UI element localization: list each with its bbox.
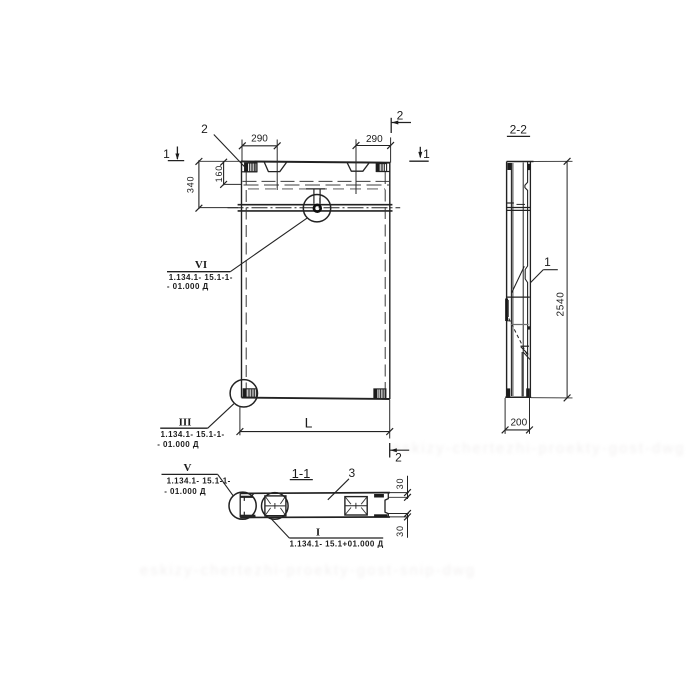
svg-text:2540: 2540 [555, 291, 566, 316]
svg-text:200: 200 [510, 418, 527, 429]
svg-text:30: 30 [395, 478, 405, 490]
svg-text:- 01.000 Д: - 01.000 Д [167, 282, 209, 291]
svg-text:2: 2 [397, 109, 404, 123]
svg-text:V: V [184, 462, 192, 474]
svg-text:160: 160 [214, 165, 224, 182]
svg-text:- 01.000 Д: - 01.000 Д [164, 487, 206, 496]
svg-text:VI: VI [195, 259, 207, 271]
svg-text:30: 30 [395, 525, 405, 537]
svg-text:3: 3 [348, 466, 355, 480]
svg-text:1.134.1- 15.1+01.000 Д: 1.134.1- 15.1+01.000 Д [290, 540, 384, 549]
svg-text:1.134.1- 15.1-1-: 1.134.1- 15.1-1- [161, 430, 225, 439]
svg-text:- 01.000 Д: - 01.000 Д [157, 440, 199, 449]
svg-text:2-2: 2-2 [510, 122, 528, 136]
svg-text:290: 290 [366, 134, 383, 145]
svg-text:1: 1 [423, 147, 430, 161]
svg-text:1.134.1- 15.1-1-: 1.134.1- 15.1-1- [167, 477, 231, 486]
svg-text:2: 2 [395, 451, 402, 465]
svg-text:1: 1 [544, 255, 551, 269]
svg-text:2: 2 [201, 122, 208, 136]
svg-text:I: I [316, 527, 320, 539]
svg-text:III: III [179, 417, 192, 429]
svg-text:1: 1 [163, 147, 170, 161]
svg-text:340: 340 [185, 176, 195, 193]
svg-text:290: 290 [251, 134, 268, 145]
svg-text:L: L [305, 415, 313, 431]
svg-text:1-1: 1-1 [292, 466, 311, 481]
svg-text:1.134.1- 15.1-1-: 1.134.1- 15.1-1- [169, 273, 233, 282]
